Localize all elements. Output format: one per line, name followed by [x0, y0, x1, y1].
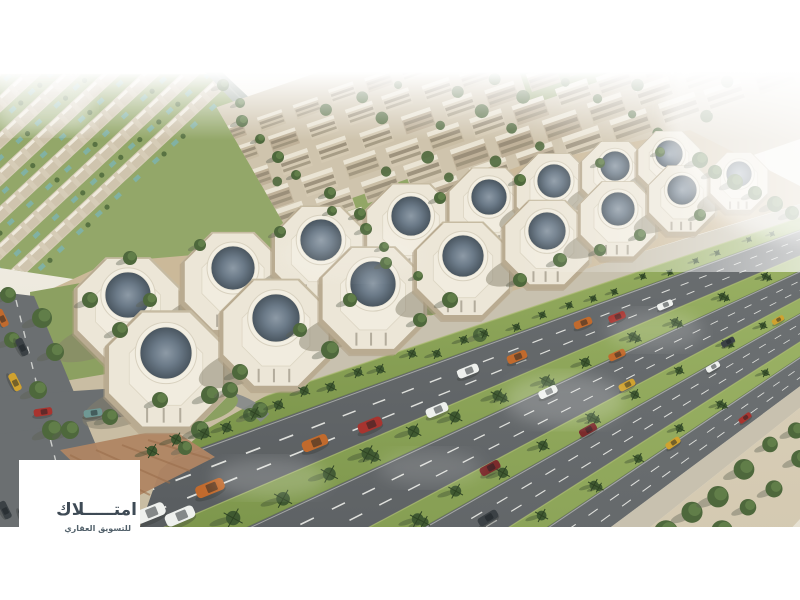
villa-pool — [104, 17, 112, 25]
apartment-block — [435, 46, 464, 69]
villa-pool — [148, 12, 156, 20]
villa-pool — [129, 30, 137, 38]
villa-pool — [60, 20, 68, 28]
apartment-block — [726, 19, 764, 49]
apartment-block — [687, 0, 719, 7]
apartment-block — [581, 0, 610, 18]
apartment-block — [542, 7, 571, 30]
villa-pool — [223, 54, 231, 62]
developer-logo-name: امتـــــلاك — [56, 501, 137, 520]
apartment-block — [763, 0, 798, 9]
villa-pool — [41, 38, 49, 46]
villa-pool — [22, 56, 30, 64]
glass-dome — [140, 327, 192, 379]
villa-pool — [66, 52, 74, 60]
aerial-render: امتـــــلاك للتسويق العقاري — [0, 0, 800, 600]
glass-dome — [442, 235, 484, 277]
villa-pool — [261, 18, 269, 26]
glass-dome — [471, 179, 507, 215]
villa-pool — [266, 50, 274, 58]
villa-pool — [178, 58, 186, 66]
glass-dome — [391, 196, 431, 236]
villa-pool — [216, 23, 224, 31]
apartment-block — [684, 9, 719, 37]
villa-pool — [17, 24, 25, 32]
apartment-block — [768, 29, 800, 62]
apartment-block — [644, 22, 679, 50]
villa-pool — [110, 48, 118, 56]
developer-logo-box: امتـــــلاك للتسويق العقاري — [19, 460, 140, 600]
villa-pool — [154, 44, 162, 52]
villa-pool — [280, 0, 288, 8]
villa-pool — [85, 35, 93, 43]
apartment-block — [648, 0, 680, 23]
villa-pool — [135, 62, 143, 70]
villa-pool — [0, 41, 6, 49]
villa-pool — [10, 0, 18, 1]
villa-pool — [79, 3, 87, 11]
apartment-block — [685, 33, 723, 63]
villa-pool — [173, 26, 181, 34]
villa-pool — [36, 6, 44, 14]
apartment-block — [605, 36, 640, 64]
apartment-block — [573, 21, 605, 46]
villa-pool — [235, 5, 243, 13]
apartment-block — [536, 34, 568, 59]
developer-logo-tagline: للتسويق العقاري — [64, 524, 131, 533]
apartment-block — [772, 4, 800, 34]
apartment-block — [507, 20, 536, 43]
villa-pool — [304, 15, 312, 23]
villa-pool — [197, 41, 205, 49]
villa-pool — [123, 0, 131, 7]
apartment-block — [473, 32, 502, 55]
villa-pool — [285, 32, 293, 40]
apartment-block — [614, 0, 643, 5]
apartment-block — [611, 9, 643, 34]
villa-pool — [192, 9, 200, 17]
villa-pool — [167, 0, 175, 2]
apartment-block — [497, 49, 529, 74]
villa-pool — [323, 0, 331, 5]
apartment-block — [723, 0, 758, 26]
villa-pool — [242, 36, 250, 44]
